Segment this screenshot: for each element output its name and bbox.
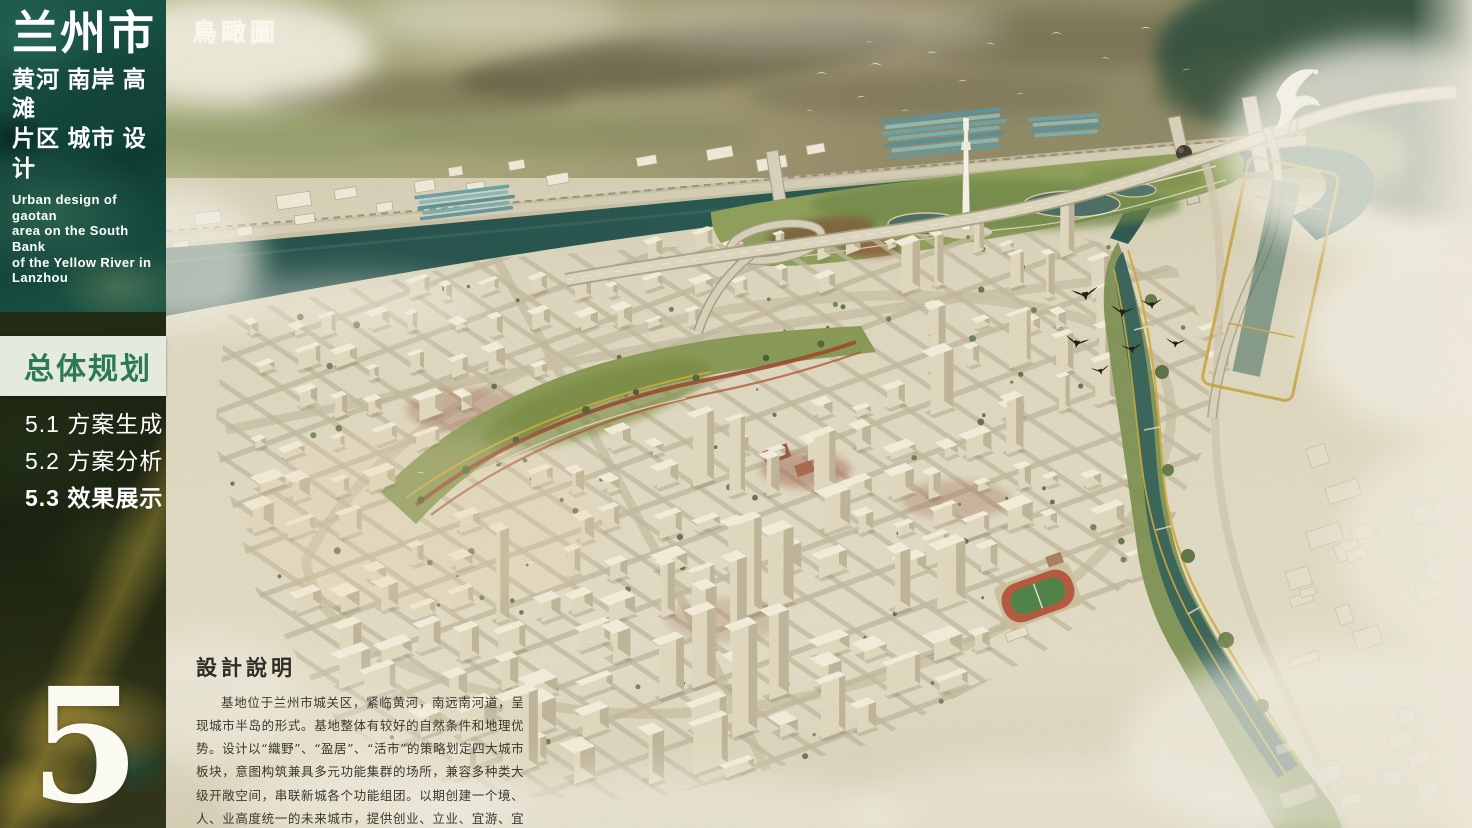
chapter-menu: 5.1 方案生成 5.2 方案分析 5.3 效果展示 [25,406,163,517]
subtitle-line1: 黄河 南岸 高滩 [12,65,158,125]
english-title-line: of the Yellow River in [12,255,158,271]
view-label: 鳥瞰圖 [192,13,279,49]
city-title: 兰州市 [12,8,158,59]
section-band: 总体规划 [0,336,166,396]
english-title-line: Lanzhou [12,270,158,286]
poster-board: 鳥瞰圖 設計說明 基地位于兰州市城关区，紧临黄河，南远南河道，呈现城市半岛的形式… [0,0,1472,828]
menu-item-5-1: 5.1 方案生成 [25,406,163,443]
aerial-render-area: 鳥瞰圖 設計說明 基地位于兰州市城关区，紧临黄河，南远南河道，呈现城市半岛的形式… [166,0,1472,828]
menu-item-5-2: 5.2 方案分析 [25,443,163,480]
design-notes: 設計說明 基地位于兰州市城关区，紧临黄河，南远南河道，呈现城市半岛的形式。基地整… [184,642,536,828]
title-block: 兰州市 黄河 南岸 高滩 片区 城市 设计 Urban design of ga… [0,0,166,312]
design-notes-body: 基地位于兰州市城关区，紧临黄河，南远南河道，呈现城市半岛的形式。基地整体有较好的… [196,691,524,828]
design-notes-title: 設計說明 [196,652,524,682]
english-title-line: Urban design of gaotan [12,192,158,223]
menu-item-5-3: 5.3 效果展示 [25,480,163,517]
section-label: 总体规划 [24,344,152,388]
english-title: Urban design of gaotan area on the South… [12,192,158,286]
english-title-line: area on the South Bank [12,223,158,254]
subtitle-line2: 片区 城市 设计 [12,124,158,184]
sidebar: 兰州市 黄河 南岸 高滩 片区 城市 设计 Urban design of ga… [0,0,166,828]
chapter-number: 5 [30,668,140,826]
